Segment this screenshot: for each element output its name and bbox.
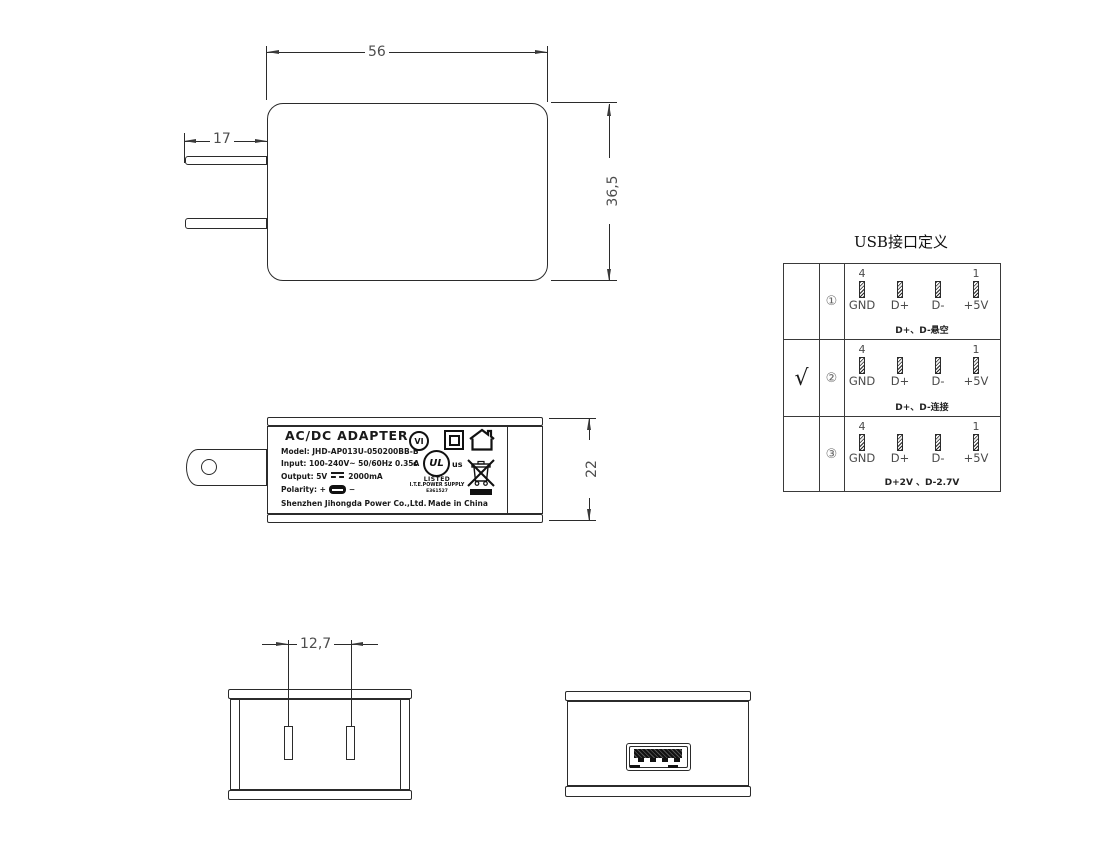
plug-view-inner-line-left <box>239 700 240 789</box>
indoor-use-house-icon <box>466 427 498 452</box>
pin-label: D- <box>931 299 944 312</box>
label-title: AC/DC ADAPTER <box>285 430 408 443</box>
pin-number-4: 4 <box>859 421 866 434</box>
pin-icon <box>973 357 979 374</box>
class2-inner-square <box>449 435 460 446</box>
pin-label: D- <box>931 452 944 465</box>
plug-view-inner-line-right <box>400 700 401 789</box>
class2-insulation-icon <box>444 430 464 450</box>
usb-table-title: USB接口定义 <box>798 235 1004 250</box>
pin-label: +5V <box>964 452 989 465</box>
dim-17-label: 17 <box>210 132 234 146</box>
pin-number-1: 1 <box>973 268 980 281</box>
pin-icon <box>897 434 903 451</box>
ul-logo-icon: UL <box>423 450 450 477</box>
label-manufacturer: Shenzhen Jihongda Power Co.,Ltd. <box>281 500 426 508</box>
dim-17-ext-left <box>184 133 185 163</box>
usb-table-row-1: ① 4 GND D+ D- 1 <box>784 264 1000 339</box>
pin-icon <box>973 281 979 298</box>
row1-selected-mark <box>784 264 819 339</box>
label-polarity-suffix: − <box>349 486 355 494</box>
dim-22-arrow-down <box>587 509 591 521</box>
pin-number-4: 4 <box>859 344 866 357</box>
pin-col-5v: 1 +5V <box>959 421 993 465</box>
plug-view-body <box>230 699 410 790</box>
dim-17-arrow-right <box>255 139 267 143</box>
label-divider <box>507 427 508 513</box>
pin-icon <box>859 281 865 298</box>
pin-icon <box>935 434 941 451</box>
dim-56-line <box>267 52 547 53</box>
row2-selected-mark: √ <box>784 340 819 416</box>
dc-symbol-icon <box>331 472 344 481</box>
label-output-prefix: Output: 5V <box>281 473 327 481</box>
label-input: Input: 100-240V~ 50/60Hz 0.35A <box>281 460 419 468</box>
label-output-suffix: 2000mA <box>348 473 383 481</box>
front-prong-lower <box>185 218 267 229</box>
pin-icon <box>897 281 903 298</box>
dim-56-ext-left <box>266 46 267 100</box>
usb-contact-pin-3 <box>662 758 668 762</box>
label-model: Model: JHD-AP013U-050200BB-B <box>281 448 419 456</box>
plug-slot-left <box>284 726 293 760</box>
dim-36-label: 36,5 <box>606 158 620 224</box>
weee-bin-icon <box>466 455 496 488</box>
ul-c-text: c <box>413 460 418 468</box>
pin-icon <box>935 281 941 298</box>
pin-icon <box>935 357 941 374</box>
ul-logo-letters: UL <box>429 458 444 469</box>
side-prong-hole <box>201 459 217 475</box>
pin-col-gnd: 4 GND <box>845 268 879 312</box>
row1-note: D+、D-悬空 <box>844 323 1000 336</box>
pin-col-dplus: D+ <box>883 268 917 312</box>
row1-index-badge: ① <box>819 264 844 339</box>
pin-label: GND <box>849 299 875 312</box>
pin-col-gnd: 4 GND <box>845 421 879 465</box>
usb-view-top-strip <box>565 691 751 701</box>
side-view-bottom-strip <box>267 514 543 523</box>
dim-56-label: 56 <box>365 45 389 59</box>
dim-127-arrow-left <box>276 642 288 646</box>
pin-icon <box>859 357 865 374</box>
ul-us-text: us <box>452 461 462 469</box>
side-view-top-strip <box>267 417 543 426</box>
dim-56-ext-right <box>547 46 548 102</box>
pin-col-dminus: D- <box>921 268 955 312</box>
row3-note: D+2V 、D-2.7V <box>844 475 1000 488</box>
weee-bar-icon <box>470 489 492 495</box>
usb-table-row-2: √ ② 4 GND D+ D- 1 <box>784 340 1000 416</box>
plug-view-top-strip <box>228 689 412 699</box>
pin-label: D+ <box>891 375 910 388</box>
dim-22-label: 22 <box>585 440 599 498</box>
efficiency-vi-icon: VI <box>409 431 429 451</box>
plug-view-bottom-strip <box>228 790 412 800</box>
label-polarity-prefix: Polarity: + <box>281 486 326 494</box>
row1-pin-diagram: 4 GND D+ D- 1 +5V <box>844 264 1000 339</box>
usb-tongue <box>634 749 682 758</box>
pin-col-gnd: 4 GND <box>845 344 879 388</box>
dim-127-ext-right <box>351 640 352 726</box>
plug-slot-right <box>346 726 355 760</box>
usb-contact-pin-2 <box>650 758 656 762</box>
dim-17-arrow-left <box>184 139 196 143</box>
pin-label: +5V <box>964 375 989 388</box>
pin-icon <box>859 434 865 451</box>
pin-label: GND <box>849 452 875 465</box>
usb-contact-pin-1 <box>638 758 644 762</box>
pin-label: GND <box>849 375 875 388</box>
row2-note: D+、D-连接 <box>844 400 1000 413</box>
pin-number-1: 1 <box>973 344 980 357</box>
ul-file-number: E361527 <box>417 490 457 495</box>
dim-127-arrow-right <box>351 642 363 646</box>
dim-56-arrow-right <box>535 50 547 54</box>
dim-127-label: 12,7 <box>297 637 334 651</box>
row3-selected-mark <box>784 417 819 491</box>
label-output-row: Output: 5V 2000mA <box>281 472 383 481</box>
row2-index-badge: ② <box>819 340 844 416</box>
pin-label: +5V <box>964 299 989 312</box>
label-polarity-row: Polarity: + − <box>281 485 355 494</box>
pin-icon <box>973 434 979 451</box>
pin-col-5v: 1 +5V <box>959 268 993 312</box>
usb-foot-right <box>668 765 678 768</box>
polarity-barrel-icon <box>329 485 346 494</box>
row3-index-badge: ③ <box>819 417 844 491</box>
dim-56-arrow-left <box>267 50 279 54</box>
row2-pin-diagram: 4 GND D+ D- 1 +5V <box>844 340 1000 416</box>
dim-22-arrow-up <box>587 418 591 430</box>
usb-foot-left <box>630 765 640 768</box>
dim-127-ext-left <box>288 640 289 726</box>
label-made-in: Made in China <box>428 500 488 508</box>
dim-36-ext-top <box>551 102 617 103</box>
pin-label: D+ <box>891 452 910 465</box>
pin-col-dplus: D+ <box>883 421 917 465</box>
pin-number-1: 1 <box>973 421 980 434</box>
pin-icon <box>897 357 903 374</box>
front-view-body <box>267 103 548 281</box>
adapter-drawing-sheet: 56 17 36,5 AC/DC ADAPTER Model: JHD-AP01… <box>0 0 1100 861</box>
side-prong <box>186 449 267 486</box>
pin-col-5v: 1 +5V <box>959 344 993 388</box>
pin-col-dminus: D- <box>921 344 955 388</box>
dim-36-arrow-down <box>607 269 611 281</box>
usb-view-bottom-strip <box>565 786 751 797</box>
row3-pin-diagram: 4 GND D+ D- 1 +5V <box>844 417 1000 491</box>
pin-label: D- <box>931 375 944 388</box>
pin-col-dminus: D- <box>921 421 955 465</box>
pin-col-dplus: D+ <box>883 344 917 388</box>
pin-label: D+ <box>891 299 910 312</box>
dim-36-arrow-up <box>607 104 611 116</box>
pin-number-4: 4 <box>859 268 866 281</box>
efficiency-vi-text: VI <box>414 437 423 446</box>
front-prong-upper <box>185 156 267 165</box>
usb-contact-pin-4 <box>674 758 680 762</box>
usb-table-row-3: ③ 4 GND D+ D- 1 <box>784 417 1000 491</box>
usb-pin-table: ① 4 GND D+ D- 1 <box>783 263 1001 492</box>
